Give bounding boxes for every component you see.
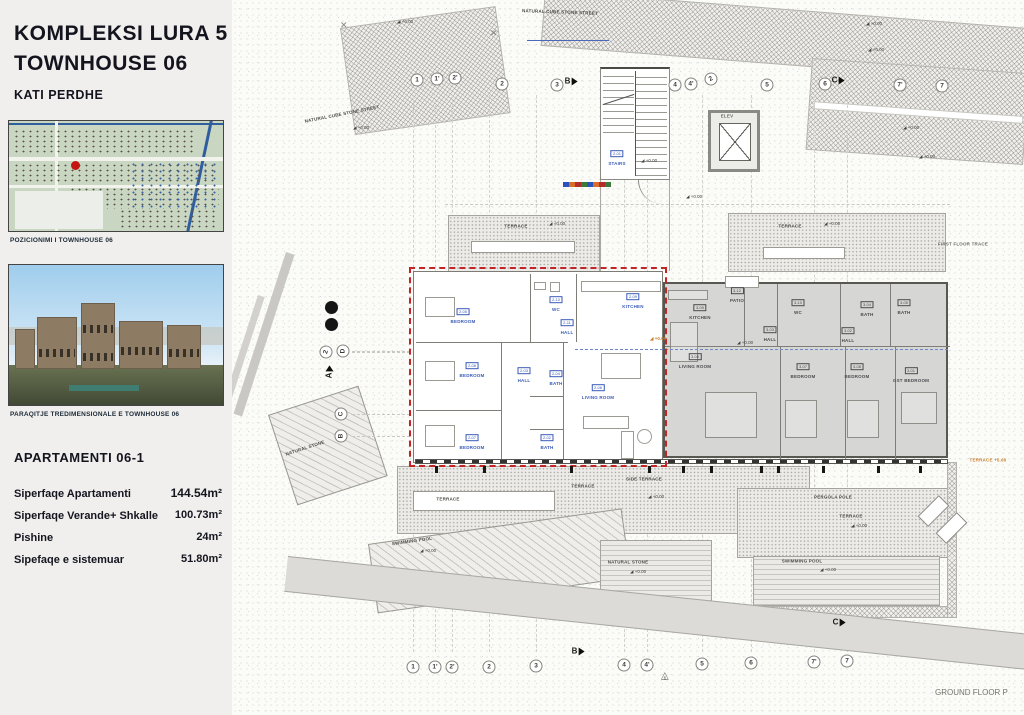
elevation-marker: ◢ +0.00 (737, 340, 753, 346)
room-number: 2-07 (465, 434, 478, 441)
grid-line-B (352, 436, 410, 437)
room-name: HALL (561, 330, 574, 336)
map-buildings (13, 129, 195, 155)
sheet-footer-label: GROUND FLOOR P (935, 688, 1008, 697)
elevation-marker: ◢ +0.00 (397, 19, 413, 25)
first-floor-trace-line (445, 204, 950, 205)
room-number: 3-08 (850, 363, 863, 370)
location-marker-dot (71, 161, 80, 170)
elevator-shaft (708, 110, 760, 172)
grid-bubble-7': 7' (894, 79, 907, 92)
room-label-gst-bedroom: 3-01GST BEDROOM (893, 358, 929, 384)
annotation-elev: ELEV (721, 114, 734, 119)
section-marker-B: B (565, 77, 578, 86)
room-number: 3-03 (763, 326, 776, 333)
grid-bubble-4': 4' (685, 78, 698, 91)
room-number: 2-04 (549, 370, 562, 377)
grid-bubble-1: 1 (411, 74, 424, 87)
section-arrow-icon (325, 366, 333, 372)
render-3d-art (9, 265, 223, 405)
apartment-heading: APARTAMENTI 06-1 (14, 450, 144, 465)
room-label-hall: 2-03HALL (517, 358, 530, 384)
room-name: HALL (763, 337, 776, 343)
section-arrow-icon (838, 76, 844, 84)
terrace-planter (413, 491, 555, 511)
floor-plan-sheet: ✕ ✕ (0, 0, 1024, 715)
room-name: BATH (860, 312, 873, 318)
elevation-marker: ◢ +0.00 (648, 494, 664, 500)
grid-bubble-4': 4' (641, 659, 654, 672)
grid-bubble-2': 2' (446, 661, 459, 674)
room-number: 2-09 (626, 293, 639, 300)
render-building (37, 317, 77, 369)
grid-bubble-6: 6 (819, 78, 832, 91)
project-title-line2: TOWNHOUSE 06 (14, 52, 188, 76)
room-name: LIVING ROOM (679, 364, 711, 370)
section-dot (325, 318, 338, 331)
room-label-bath: 2-04BATH (549, 361, 562, 387)
grid-line-C (352, 414, 410, 415)
room-name: PATIO (730, 298, 744, 304)
room-label-bedroom: 3-08BEDROOM (845, 354, 870, 380)
room-number: 2-08 (465, 362, 478, 369)
room-label-bedroom: 3-07BEDROOM (791, 354, 816, 380)
street-median (813, 101, 1023, 124)
stat-value: 24m² (196, 531, 222, 543)
section-letter: A (325, 373, 334, 379)
room-name: KITCHEN (689, 315, 710, 321)
annotation-terrace: TERRACE (504, 224, 527, 229)
annotation-terrace-5-60: TERRACE +5.60 (970, 458, 1007, 463)
project-title-line1: KOMPLEKSI LURA 5 (14, 22, 228, 46)
elevation-marker: ◢ +0.00 (824, 221, 840, 227)
render-windows (39, 349, 75, 357)
elevation-marker: ◢ +0.00 (866, 21, 882, 27)
room-label-hall: 3-02HALL (841, 318, 854, 344)
elevation-marker: ◢ +0.00 (641, 158, 657, 164)
room-number: 2-10 (549, 296, 562, 303)
room-number: 2-02 (540, 434, 553, 441)
elevation-marker: ◢ +0.00 (420, 548, 436, 554)
grid-bubble-C: C (335, 408, 348, 421)
map-buildings (119, 209, 219, 229)
elevation-marker: ◢ +0.00 (868, 47, 884, 53)
render-windows (83, 325, 113, 333)
leader-line-blue (527, 40, 609, 41)
room-number: 2-06 (591, 384, 604, 391)
grid-bubble-1': 1' (429, 661, 442, 674)
room-name: HALL (841, 338, 854, 344)
wall (890, 284, 891, 346)
room-label-kitchen: 2-09KITCHEN (622, 284, 643, 310)
room-label-bedroom: 2-05BEDROOM (451, 299, 476, 325)
grid-bubble-3: 3 (551, 79, 564, 92)
section-letter: C (832, 76, 838, 85)
render-building (167, 325, 201, 369)
grid-bubble-5: 5 (761, 79, 774, 92)
room-number: 3-02 (841, 327, 854, 334)
render-windows (121, 347, 161, 355)
room-number: 2-05 (456, 308, 469, 315)
room-number: 3-04 (860, 301, 873, 308)
dimension-tick (822, 466, 825, 473)
room-label-hall: 3-03HALL (763, 317, 776, 343)
room-label-bath: 2-02BATH (540, 425, 553, 451)
room-number: 2-01 (610, 150, 623, 157)
annotation-terrace: TERRACE (839, 514, 862, 519)
grid-line-2 (352, 352, 410, 353)
room-name: WC (791, 310, 804, 316)
terrace-planter (471, 241, 575, 253)
elevation-marker: ◢ +0.00 (851, 523, 867, 529)
annotation-first-floor-trace: FIRST FLOOR TRACE (938, 242, 988, 247)
room-label-hall: 2-11HALL (561, 310, 574, 336)
room-name: BEDROOM (791, 374, 816, 380)
grid-bubble-1: 1 (407, 661, 420, 674)
terrace-planter (763, 247, 845, 259)
bed (785, 400, 817, 438)
room-label-bedroom: 2-07BEDROOM (460, 425, 485, 451)
stat-value: 51.80m² (181, 553, 222, 565)
dimension-tick (710, 466, 713, 473)
room-number: 3-12 (730, 287, 743, 294)
room-name: BEDROOM (460, 373, 485, 379)
dimension-tick (483, 466, 486, 473)
stat-label: Sipefaqe e sistemuar (14, 554, 124, 566)
room-name: BATH (897, 310, 910, 316)
grid-bubble-7': 7' (808, 656, 821, 669)
section-arrow-icon (578, 647, 584, 655)
annotation-terrace: TERRACE (436, 497, 459, 502)
floor-subtitle: KATI PERDHE (14, 88, 103, 102)
grid-bubble-3: 3 (530, 660, 543, 673)
elevation-marker: ◢ +0.00 (630, 569, 646, 575)
elevation-marker: ◢ +0.00 (919, 154, 935, 160)
room-label-wc: 2-10WC (549, 287, 562, 313)
grid-bubble-2: 2 (483, 661, 496, 674)
render-building (15, 329, 35, 369)
room-name: HALL (517, 378, 530, 384)
elevation-marker: ◢ +0.00 (820, 567, 836, 573)
render-3d-image (8, 264, 224, 406)
stat-label: Siperfaqe Verande+ Shkalle (14, 510, 158, 522)
room-label-kitchen: 3-09KITCHEN (689, 295, 710, 321)
grid-bubble-2: 2 (496, 78, 509, 91)
room-name: BATH (549, 381, 562, 387)
wall (777, 284, 778, 346)
room-label-wc: 3-10WC (791, 290, 804, 316)
room-label-bath: 3-04BATH (860, 292, 873, 318)
section-marker-C: C (833, 618, 846, 627)
section-marker-B: B (572, 647, 585, 656)
room-number: 3-10 (791, 299, 804, 306)
grid-bubble-1': 1' (431, 73, 444, 86)
site-map-art (9, 121, 223, 231)
wall (780, 346, 781, 460)
room-label-bedroom: 2-08BEDROOM (460, 353, 485, 379)
stair-divider (635, 71, 636, 176)
section-arrow-icon (571, 77, 577, 85)
map-plaza (15, 191, 103, 229)
street-corner-mark: ✕ (340, 20, 348, 31)
render-building (119, 321, 163, 369)
dimension-tick (682, 466, 685, 473)
room-number: 2-11 (561, 319, 574, 326)
room-label-stairs: 2-01STAIRS (608, 141, 625, 167)
elevator-cab (719, 123, 751, 161)
annotation-natural-stone: NATURAL STONE (608, 560, 649, 565)
room-label-living-room: 3-06LIVING ROOM (679, 344, 711, 370)
annotation-pergola-pole: PERGOLA POLE (814, 495, 852, 500)
street-corner-mark: ✕ (490, 28, 498, 39)
room-name: KITCHEN (622, 304, 643, 310)
section-letter: B (565, 77, 571, 86)
dimension-tick (919, 466, 922, 473)
grid-bubble-B: B (335, 430, 348, 443)
map-water-features (129, 161, 219, 211)
street-right-band (806, 58, 1024, 165)
room-name: BEDROOM (845, 374, 870, 380)
annotation-side-terrace: SIDE TERRACE (626, 477, 662, 482)
room-name: BEDROOM (460, 445, 485, 451)
room-label-living-room: 2-06LIVING ROOM (582, 375, 614, 401)
render-windows (83, 353, 113, 361)
room-number: 3-09 (693, 304, 706, 311)
stat-value: 144.54m² (171, 486, 222, 500)
render-windows (169, 349, 199, 357)
stat-value: 100.73m² (175, 509, 222, 521)
annotation-terrace: TERRACE (571, 484, 594, 489)
bed (901, 392, 937, 424)
room-number: 3-05 (897, 299, 910, 306)
site-map-caption: POZICIONIMI I TOWNHOUSE 06 (10, 237, 113, 244)
room-name: BATH (540, 445, 553, 451)
room-name: STAIRS (608, 161, 625, 167)
map-road-blue (9, 123, 223, 125)
render-pool (69, 385, 139, 391)
grid-bubble-7: 7 (936, 80, 949, 93)
section-arrow-icon (839, 618, 845, 626)
section-letter: C (833, 618, 839, 627)
room-label-patio: 3-12PATIO (730, 278, 744, 304)
room-number: 3-07 (796, 363, 809, 370)
swimming-pool-right (753, 556, 940, 606)
dimension-tick (648, 466, 651, 473)
bed (847, 400, 879, 438)
section-marker-A: A (325, 366, 334, 379)
grid-bubble-5: 5 (696, 658, 709, 671)
site-map-image (8, 120, 224, 232)
dimension-tick (435, 466, 438, 473)
grid-bubble-7: 7 (841, 655, 854, 668)
room-label-bath: 3-05BATH (897, 290, 910, 316)
grid-bubble-D: D (337, 345, 350, 358)
dimension-tick (570, 466, 573, 473)
annotation-terrace: TERRACE (778, 224, 801, 229)
room-name: BEDROOM (451, 319, 476, 325)
room-number: 3-06 (688, 353, 701, 360)
annotation-swimming-pool: SWIMMING POOL (782, 559, 823, 564)
section-color-strip (563, 182, 611, 187)
elevation-marker: ◢ +0.00 (353, 125, 369, 131)
room-number: 3-01 (904, 367, 917, 374)
dimension-tick (777, 466, 780, 473)
room-number: 2-03 (517, 367, 530, 374)
stat-label: Pishine (14, 532, 53, 544)
grid-bubble-4: 4 (669, 79, 682, 92)
grid-bubble-6: 6 (745, 657, 758, 670)
render-3d-caption: PARAQITJE TREDIMENSIONALE E TOWNHOUSE 06 (10, 411, 179, 418)
detail-marker-number: 1 (664, 676, 667, 681)
section-dot (325, 301, 338, 314)
elevation-marker: ◢ +0.00 (686, 194, 702, 200)
elevation-marker: ◢ +0.00 (903, 125, 919, 131)
elevation-marker: ◢ +0.00 (650, 336, 666, 342)
stat-label: Siperfaqe Apartamenti (14, 488, 131, 500)
section-letter: B (572, 647, 578, 656)
elevation-marker: ◢ +0.00 (549, 221, 565, 227)
sofa-set (705, 392, 757, 438)
section-marker-C: C (832, 76, 845, 85)
room-name: LIVING ROOM (582, 395, 614, 401)
grid-bubble-2': 2' (449, 72, 462, 85)
dimension-tick (877, 466, 880, 473)
grid-line-D (352, 351, 410, 352)
street-left-band (340, 6, 511, 135)
dimension-tick (760, 466, 763, 473)
info-sidebar: KOMPLEKSI LURA 5 TOWNHOUSE 06 KATI PERDH… (0, 0, 232, 715)
wall (744, 284, 745, 346)
room-name: GST BEDROOM (893, 378, 929, 384)
grid-bubble-4: 4 (618, 659, 631, 672)
